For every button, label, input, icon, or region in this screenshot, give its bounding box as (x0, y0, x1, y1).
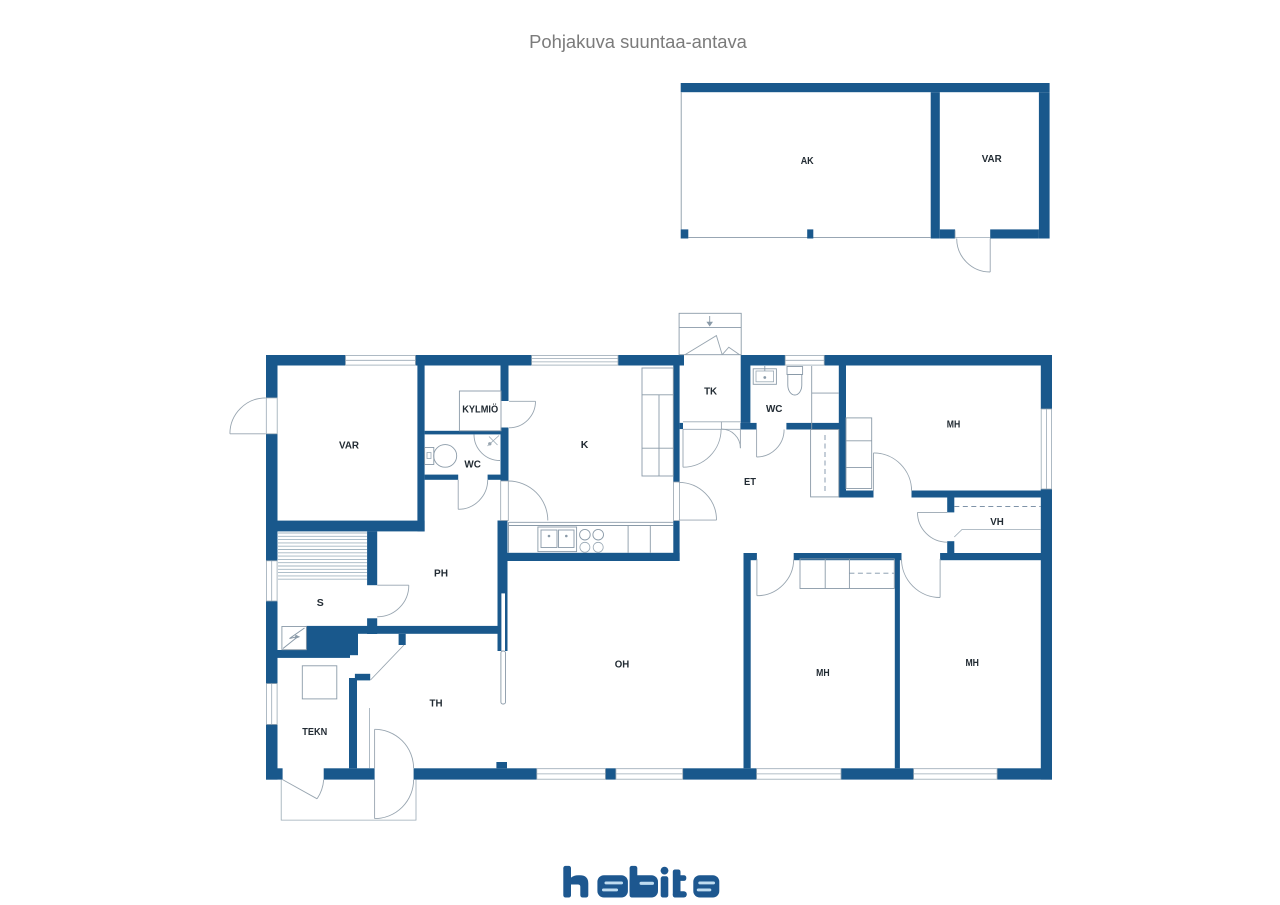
svg-text:TEKN: TEKN (302, 726, 327, 738)
svg-text:TH: TH (430, 698, 443, 710)
svg-text:OH: OH (615, 659, 630, 671)
svg-text:PH: PH (434, 568, 448, 580)
svg-text:WC: WC (766, 403, 783, 415)
svg-text:Pohjakuva suuntaa-antava: Pohjakuva suuntaa-antava (529, 31, 748, 52)
svg-text:VAR: VAR (339, 440, 359, 452)
svg-text:MH: MH (816, 667, 830, 679)
svg-text:MH: MH (965, 657, 979, 669)
svg-text:TK: TK (704, 386, 717, 398)
svg-text:AK: AK (801, 155, 814, 167)
svg-text:KYLMIÖ: KYLMIÖ (462, 403, 498, 416)
svg-text:K: K (581, 439, 589, 451)
svg-text:MH: MH (947, 419, 961, 431)
svg-text:ET: ET (744, 476, 757, 488)
svg-text:VAR: VAR (982, 153, 1002, 165)
svg-text:VH: VH (990, 516, 1004, 528)
svg-text:WC: WC (464, 459, 481, 471)
svg-text:S: S (317, 597, 324, 609)
